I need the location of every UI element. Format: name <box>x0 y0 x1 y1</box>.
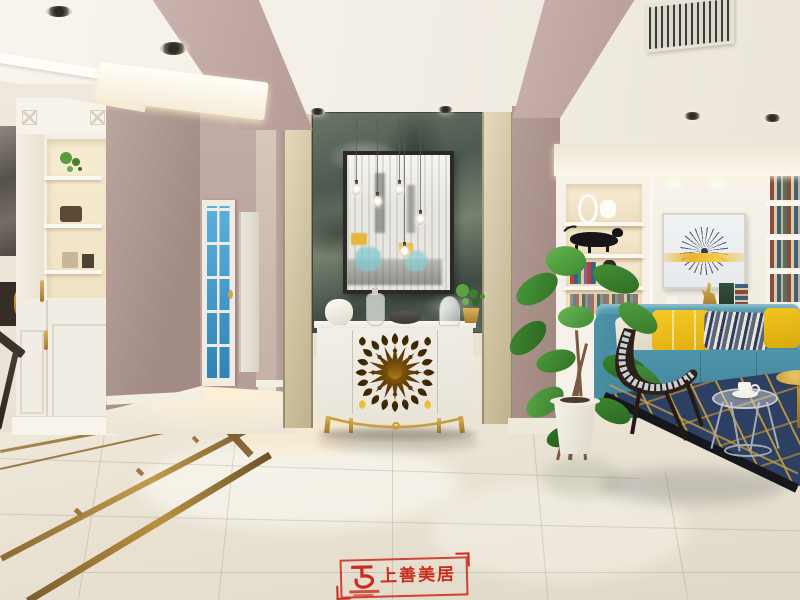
pendant-bulb <box>373 196 382 207</box>
brand-logo-icon <box>348 563 379 591</box>
downlight <box>46 6 72 17</box>
book-spines <box>770 172 800 200</box>
table-base-ring <box>724 444 772 457</box>
panther-figurine-head <box>612 228 623 237</box>
door-panel <box>20 330 44 414</box>
door-seam <box>352 330 353 414</box>
planter-soil <box>560 397 590 403</box>
shelf-decor <box>62 252 78 268</box>
sculpture-decor <box>578 194 598 224</box>
sideboard-gold-stretcher <box>326 412 466 434</box>
downlight-glow <box>660 176 686 192</box>
painting-teal-patch <box>355 247 381 271</box>
door-seam <box>46 300 48 420</box>
plant-leaf <box>534 347 577 376</box>
hallway-left-wall <box>106 86 202 410</box>
door-panel <box>52 324 110 420</box>
downlight <box>160 42 187 55</box>
door-glass-panes <box>207 206 230 378</box>
coffee-cup <box>738 382 751 392</box>
cabinet-handle <box>44 330 48 350</box>
lounge-chair <box>602 322 714 464</box>
abstract-wall-art <box>662 213 746 289</box>
cabinet-shelf <box>44 176 102 180</box>
hallway-white-door <box>239 212 259 372</box>
book-spines <box>770 240 800 268</box>
sculpture-decor <box>600 200 616 218</box>
glass-cloche <box>439 296 460 326</box>
book-spines <box>770 206 800 234</box>
shelf-plant <box>60 152 72 164</box>
cabinet-shelf <box>44 270 102 274</box>
glass-decanter <box>366 293 385 326</box>
door-seam <box>437 330 438 414</box>
pillow-yellow <box>764 308 800 348</box>
watermark: 上善美居 <box>339 552 472 599</box>
painting-stroke <box>407 185 415 233</box>
white-sculpture <box>325 299 353 325</box>
champagne-mirror-strip <box>283 114 313 428</box>
cabinet-handle <box>40 280 44 302</box>
plant-leaf <box>557 305 594 329</box>
cove-light <box>554 144 800 176</box>
pendant-bulb <box>395 184 404 195</box>
wire-side-table <box>712 388 778 458</box>
book-stack <box>735 284 748 306</box>
pendant-cord <box>420 118 421 214</box>
art-yellow-band <box>664 253 744 262</box>
downlight <box>684 112 701 120</box>
table-leg <box>710 402 724 449</box>
dark-bowl <box>389 311 421 324</box>
door-handle <box>228 290 233 299</box>
shelf-decor <box>60 206 82 222</box>
pendant-bulb <box>416 214 425 225</box>
ac-vent-grille <box>646 0 734 53</box>
small-plant <box>456 284 469 297</box>
shelf-decor <box>82 254 94 268</box>
pendant-cord <box>399 118 400 184</box>
molding-rosette <box>90 110 105 125</box>
cup-handle <box>750 384 760 394</box>
pendant-cord <box>404 118 405 246</box>
pendant-bulb <box>352 184 361 195</box>
molding-rosette <box>22 110 37 125</box>
hallway-end-wall <box>256 112 278 386</box>
pendant-cord <box>377 118 378 196</box>
book-spines <box>770 274 800 302</box>
downlight <box>764 114 781 122</box>
pendant-cord <box>356 118 357 184</box>
plant-leaf <box>589 257 643 300</box>
brand-name: 上善美居 <box>380 563 465 587</box>
painting-yellow-accent <box>351 233 367 245</box>
downlight <box>438 106 453 113</box>
cabinet-shelf <box>44 224 102 228</box>
downlight-glow <box>704 176 730 192</box>
pendant-bulb <box>400 246 409 257</box>
interior-photo: 上善美居 <box>0 0 800 600</box>
gold-mandala-door <box>354 329 436 416</box>
table-leg <box>766 402 780 449</box>
baseboard <box>12 416 116 435</box>
downlight <box>310 108 325 115</box>
